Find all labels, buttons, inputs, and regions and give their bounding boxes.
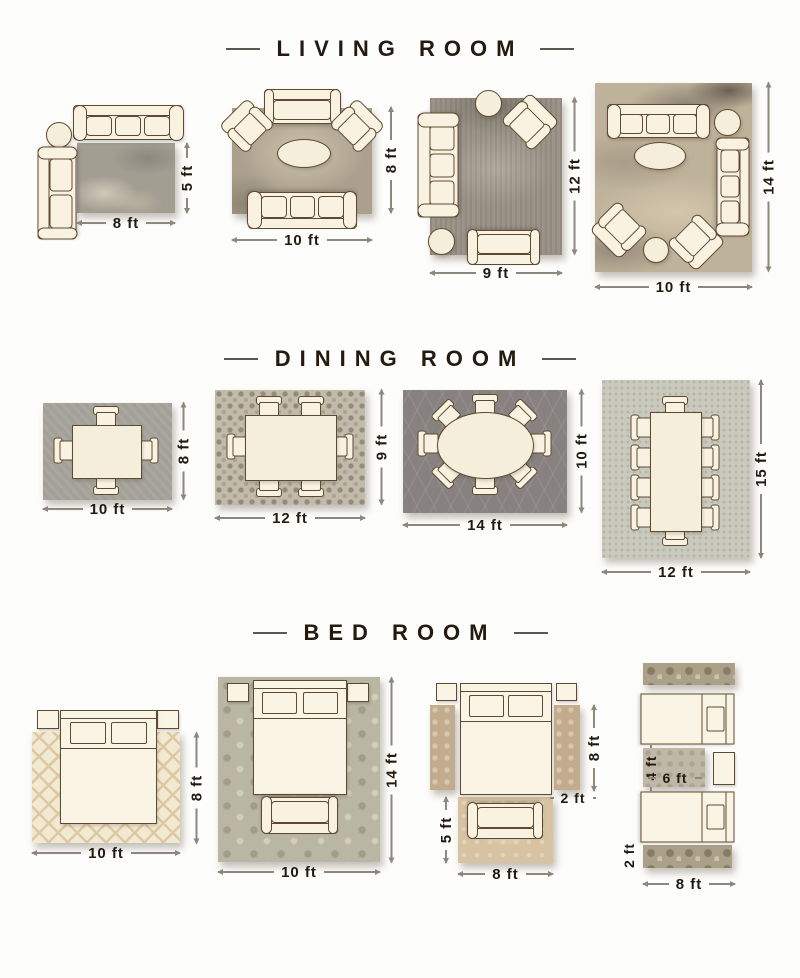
dimension-label: 15 ft — [753, 451, 770, 487]
dining-table — [72, 425, 142, 479]
runner-rug — [554, 705, 580, 790]
nightstand — [347, 683, 369, 702]
width-dimension: 10 ft — [43, 500, 172, 518]
dimension-label: 9 ft — [483, 265, 510, 282]
runner-rug — [643, 845, 732, 868]
loveseat — [264, 89, 340, 124]
dimension-label: 2 ft — [621, 843, 637, 868]
dimension-label: 14 ft — [760, 159, 777, 195]
nightstand — [157, 710, 179, 729]
dining-chair — [418, 431, 439, 457]
dimension-label: 8 ft — [175, 438, 192, 465]
dimension-label: 10 ft — [281, 864, 317, 881]
dimension-label: 6 ft — [663, 770, 688, 786]
dimension-label: 12 ft — [272, 510, 308, 527]
sofa — [717, 138, 750, 236]
dimension-label: 8 ft — [492, 866, 519, 883]
runner-width-dimension: 2 ft — [620, 839, 638, 875]
bench — [262, 797, 338, 834]
dimension-label: 10 ft — [573, 433, 590, 469]
twin-bed — [641, 792, 735, 843]
coffee-table — [634, 142, 686, 170]
dimension-label: 8 ft — [586, 735, 603, 762]
dining-chair — [631, 505, 652, 531]
nightstand — [227, 683, 249, 702]
side-table — [714, 109, 741, 136]
height-dimension: 8 ft — [188, 733, 206, 844]
width-dimension: 10 ft — [32, 844, 180, 862]
dimension-label: 8 ft — [383, 147, 400, 174]
bed — [60, 710, 157, 824]
dimension-label: 8 ft — [113, 215, 140, 232]
dining-chair — [93, 406, 119, 427]
runner-length-dimension: 8 ft — [643, 875, 735, 893]
dining-chair — [631, 475, 652, 501]
twin-bed — [641, 694, 735, 745]
bed — [460, 683, 552, 795]
width-dimension: 12 ft — [602, 563, 750, 581]
runner-rug — [430, 705, 455, 790]
side-table — [46, 122, 72, 148]
small-rug-width-dimension: 6 ft — [648, 769, 702, 787]
height-dimension: 10 ft — [573, 390, 591, 513]
bed-room-header: BED ROOM — [0, 620, 800, 646]
header-dash-right — [540, 48, 574, 51]
height-dimension: 15 ft — [752, 380, 770, 558]
dining-chair — [631, 415, 652, 441]
dimension-label: 14 ft — [467, 517, 503, 534]
dimension-label: 5 ft — [438, 817, 455, 844]
dimension-label: 12 ft — [658, 564, 694, 581]
nightstand — [713, 752, 735, 785]
section-title: BED ROOM — [304, 620, 497, 646]
header-dash-right — [514, 632, 548, 635]
nightstand — [436, 683, 457, 701]
header-dash-left — [224, 358, 258, 361]
coffee-table — [277, 139, 331, 168]
loveseat — [468, 230, 540, 265]
loveseat — [38, 148, 77, 240]
width-dimension: 12 ft — [215, 509, 365, 527]
runner-rug — [643, 663, 735, 685]
width-dimension: 9 ft — [430, 264, 562, 282]
header-dash-left — [253, 632, 287, 635]
sofa — [248, 192, 357, 229]
side-table — [643, 237, 669, 263]
side-table — [428, 228, 455, 255]
dining-table — [245, 415, 337, 481]
nightstand — [556, 683, 577, 701]
dimension-label: 9 ft — [373, 434, 390, 461]
width-dimension: 10 ft — [232, 231, 372, 249]
rug-size-guide-infographic: LIVING ROOM 8 ft 5 ft — [0, 0, 800, 978]
dimension-label: 10 ft — [284, 232, 320, 249]
runner-height-dimension: 8 ft — [585, 705, 603, 791]
dimension-label: 10 ft — [656, 279, 692, 296]
bench — [468, 803, 543, 839]
dimension-label: 10 ft — [88, 845, 124, 862]
header-dash-right — [542, 358, 576, 361]
dining-room-header: DINING ROOM — [0, 346, 800, 372]
height-dimension: 14 ft — [383, 678, 401, 863]
bed — [253, 680, 347, 795]
height-dimension: 12 ft — [566, 98, 584, 255]
side-table — [475, 90, 502, 117]
dining-chair — [298, 396, 324, 417]
sofa — [73, 105, 183, 140]
height-dimension: 14 ft — [760, 83, 778, 272]
runner-width-dimension: 2 ft — [550, 789, 596, 807]
height-dimension: 8 ft — [175, 403, 193, 500]
dining-chair — [256, 396, 282, 417]
oval-dining-table — [437, 412, 534, 479]
dimension-label: 14 ft — [383, 752, 400, 788]
dimension-label: 5 ft — [179, 165, 196, 192]
width-dimension: 10 ft — [595, 278, 752, 296]
dimension-label: 8 ft — [188, 775, 205, 802]
area-rug — [77, 143, 175, 213]
header-dash-left — [226, 48, 260, 51]
accent-height-dimension: 5 ft — [437, 797, 455, 863]
section-title: LIVING ROOM — [277, 36, 524, 62]
living-room-header: LIVING ROOM — [0, 36, 800, 62]
dimension-label: 2 ft — [561, 790, 586, 806]
dimension-label: 8 ft — [676, 876, 703, 893]
height-dimension: 8 ft — [382, 107, 400, 213]
sofa — [418, 114, 459, 218]
accent-width-dimension: 8 ft — [458, 865, 553, 883]
dining-chair — [631, 445, 652, 471]
height-dimension: 9 ft — [373, 390, 391, 505]
dining-table — [650, 412, 702, 532]
sofa — [607, 104, 709, 138]
dimension-label: 12 ft — [566, 158, 583, 194]
width-dimension: 10 ft — [218, 863, 380, 881]
nightstand — [37, 710, 59, 729]
width-dimension: 8 ft — [77, 214, 175, 232]
section-title: DINING ROOM — [275, 346, 526, 372]
dimension-label: 10 ft — [90, 501, 126, 518]
height-dimension: 5 ft — [178, 143, 196, 213]
width-dimension: 14 ft — [403, 516, 567, 534]
